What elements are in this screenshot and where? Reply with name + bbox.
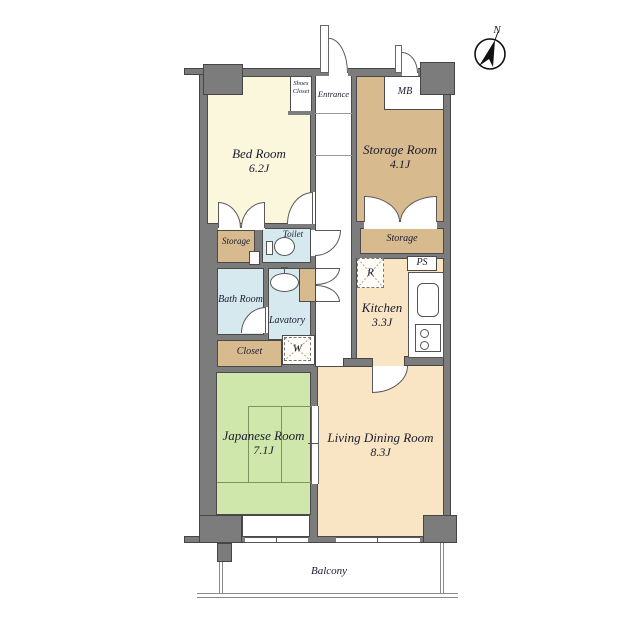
pillar-bottom-left bbox=[199, 515, 242, 543]
japanese-room-area: 7.1J bbox=[216, 443, 311, 457]
storage-room-name: Storage Room bbox=[356, 142, 444, 157]
lavatory-tap-icon bbox=[284, 267, 285, 274]
hall-cabinet bbox=[299, 268, 316, 302]
living-dining-room-name: Living Dining Room bbox=[317, 430, 444, 445]
toilet-tank-icon bbox=[266, 241, 273, 255]
meter-box-label: MB bbox=[384, 86, 426, 98]
japanese-room-veranda-strip bbox=[242, 515, 310, 537]
pillar-bottom-right bbox=[423, 515, 457, 543]
balcony-rail-right bbox=[440, 543, 444, 593]
tatami-line bbox=[248, 406, 311, 407]
pillar-top-left bbox=[203, 64, 243, 95]
bed-room-area: 6.2J bbox=[207, 161, 311, 175]
pipe-space-label: PS bbox=[407, 257, 437, 269]
japanese-room-label: Japanese Room 7.1J bbox=[216, 428, 311, 457]
storage-left-label: Storage bbox=[217, 236, 255, 247]
balcony-rail-left bbox=[219, 562, 223, 594]
bed-room-label: Bed Room 6.2J bbox=[207, 146, 311, 175]
bed-room-name: Bed Room bbox=[207, 146, 311, 161]
kitchen-name: Kitchen bbox=[352, 300, 412, 315]
washing-machine-box: W bbox=[284, 337, 311, 361]
balcony-label: Balcony bbox=[277, 565, 381, 578]
toilet-label: Toilet bbox=[272, 229, 314, 240]
storage-left-notch bbox=[249, 251, 260, 265]
tatami-line bbox=[217, 482, 311, 483]
washing-machine-label: W bbox=[285, 343, 310, 355]
refrigerator-label: R bbox=[358, 267, 383, 279]
balcony-rail-bottom bbox=[197, 593, 458, 598]
lavatory-sink-icon bbox=[270, 273, 299, 292]
kitchen-label: Kitchen 3.3J bbox=[352, 300, 412, 329]
wall-arm-bottom-left bbox=[184, 536, 200, 543]
storage-room-area: 4.1J bbox=[356, 157, 444, 171]
burner-icon bbox=[420, 341, 429, 350]
storage-right-label: Storage bbox=[360, 233, 444, 245]
entrance-door-leaf bbox=[320, 25, 329, 73]
toilet-bowl-icon bbox=[274, 237, 295, 256]
wall-ledge-top-left bbox=[184, 68, 204, 75]
hallway bbox=[315, 76, 352, 367]
entrance-step-line bbox=[315, 113, 352, 114]
lavatory-label: Lavatory bbox=[262, 315, 312, 327]
closet-label: Closet bbox=[217, 346, 282, 358]
bath-room-label: Bath Room bbox=[217, 294, 264, 306]
window-tick bbox=[276, 537, 277, 543]
shoes-closet-label: Shoes Closet bbox=[289, 80, 313, 96]
burner-icon bbox=[420, 329, 429, 338]
refrigerator-box: R bbox=[357, 258, 384, 288]
window-living-room bbox=[336, 537, 420, 543]
wall-stub-hall-kitchen bbox=[343, 358, 373, 367]
living-dining-room-label: Living Dining Room 8.3J bbox=[317, 430, 444, 459]
entrance-label: Entrance bbox=[315, 89, 352, 99]
japanese-room-name: Japanese Room bbox=[216, 428, 311, 443]
floor-plan: R W N Bed Room 6.2J Storage Room 4.1J Ki… bbox=[0, 0, 640, 640]
storage-room-closet-opening bbox=[364, 222, 437, 229]
entrance-door-arc bbox=[329, 38, 348, 73]
wall-leg-bottom-left bbox=[217, 543, 232, 562]
wall-under-shoes-closet bbox=[288, 111, 314, 115]
window-tick bbox=[377, 537, 378, 543]
compass-north-label: N bbox=[489, 24, 505, 37]
living-dining-room-area: 8.3J bbox=[317, 445, 444, 459]
lavatory-tap-icon bbox=[281, 267, 288, 268]
mb-door-arc bbox=[402, 52, 418, 73]
kitchen-area: 3.3J bbox=[352, 315, 412, 329]
mb-door-leaf bbox=[395, 45, 402, 73]
storage-room-label: Storage Room 4.1J bbox=[356, 142, 444, 171]
kitchen-sink-icon bbox=[417, 283, 439, 317]
hall-step-line bbox=[315, 155, 352, 156]
